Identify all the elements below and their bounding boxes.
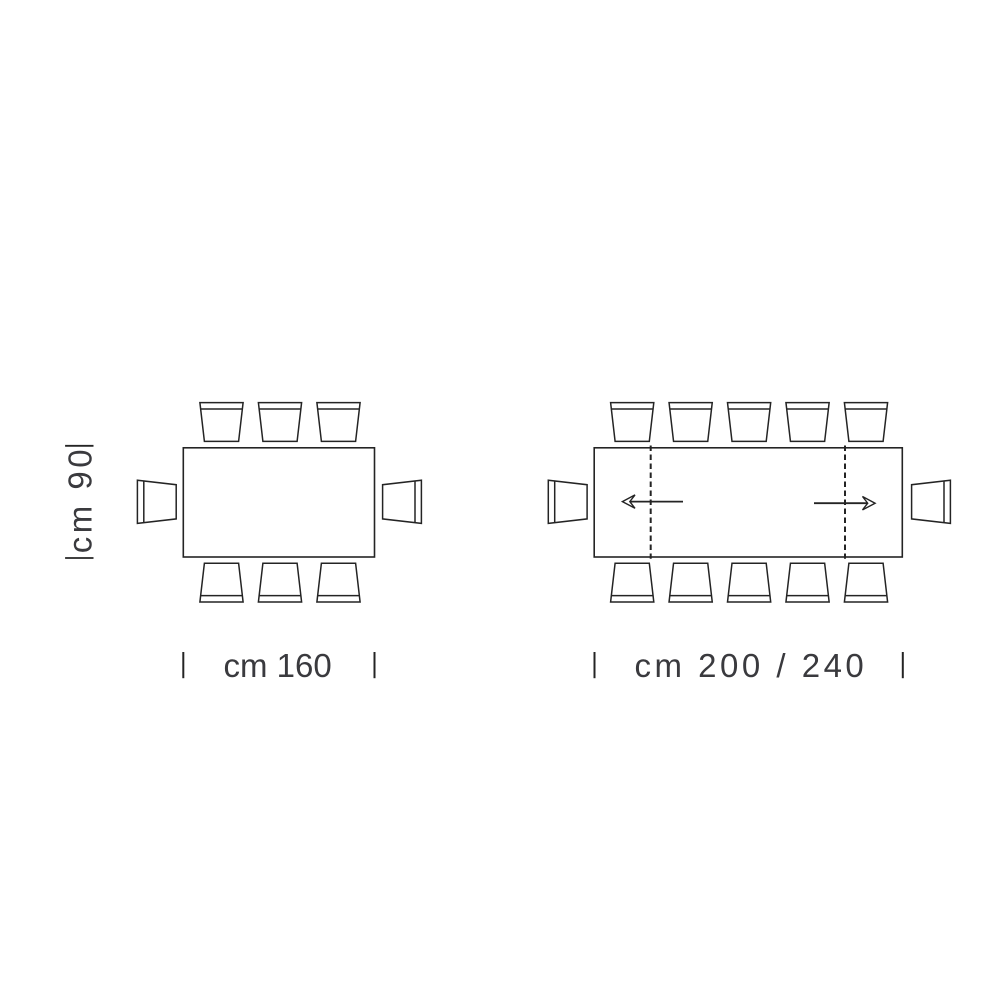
svg-text:cm 90: cm 90 <box>62 446 99 553</box>
svg-text:cm 200 / 240: cm 200 / 240 <box>635 647 868 684</box>
svg-text:cm 160: cm 160 <box>223 647 331 684</box>
